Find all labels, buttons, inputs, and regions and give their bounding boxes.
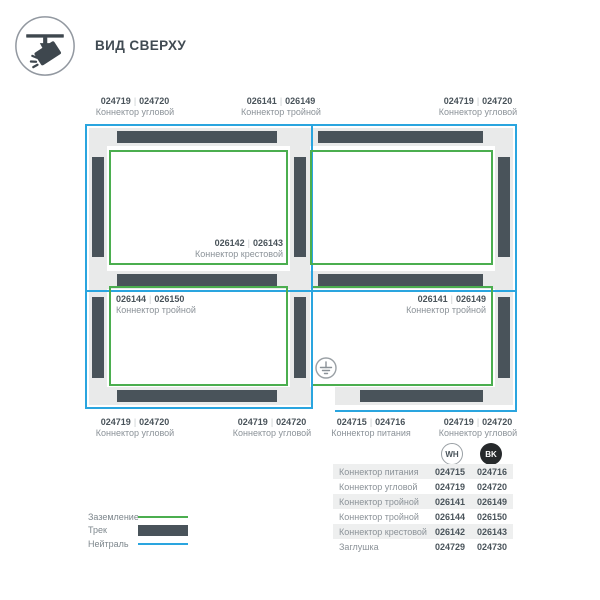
neutral-line xyxy=(335,410,517,412)
part-name: Коннектор крестовой xyxy=(333,527,429,537)
neutral-line xyxy=(85,407,313,409)
part-code-wh: 024715 xyxy=(429,467,471,477)
parts-table: Коннектор питания 024715 024716 Коннекто… xyxy=(333,464,513,554)
legend-item-track: Трек xyxy=(88,524,188,538)
legend: Заземление Трек Нейтраль xyxy=(88,510,188,551)
connector-label-top-right: 024719|024720 Коннектор угловой xyxy=(428,96,528,117)
part-code-bk: 024716 xyxy=(471,467,513,477)
ground-icon xyxy=(315,357,337,379)
part-code-wh: 024729 xyxy=(429,542,471,552)
table-row: Коннектор крестовой 026142 026143 xyxy=(333,524,513,539)
part-code-bk: 026149 xyxy=(471,497,513,507)
track-segment xyxy=(92,157,104,257)
part-code-wh: 026141 xyxy=(429,497,471,507)
color-badge-white: WH xyxy=(441,443,463,465)
track-bar-swatch xyxy=(138,525,188,536)
part-name: Коннектор тройной xyxy=(333,512,429,522)
part-code-wh: 024719 xyxy=(429,482,471,492)
track-segment xyxy=(92,297,104,378)
legend-item-neutral: Нейтраль xyxy=(88,537,188,551)
part-code-wh: 026144 xyxy=(429,512,471,522)
legend-item-ground: Заземление xyxy=(88,510,188,524)
neutral-line xyxy=(85,124,517,126)
neutral-line xyxy=(85,124,87,409)
ground-line-dashed xyxy=(314,384,338,386)
track-segment xyxy=(498,157,510,257)
track-segment xyxy=(117,274,277,286)
part-code-bk: 024730 xyxy=(471,542,513,552)
connector-label-right-middle: 026141|026149 Коннектор тройной xyxy=(336,294,486,315)
color-badge-black: BK xyxy=(480,443,502,465)
part-code-bk: 026150 xyxy=(471,512,513,522)
track-segment xyxy=(294,297,306,378)
part-name: Заглушка xyxy=(333,542,429,552)
track-segment xyxy=(117,390,277,402)
table-row: Коннектор тройной 026141 026149 xyxy=(333,494,513,509)
page-title: ВИД СВЕРХУ xyxy=(95,38,186,53)
connector-label-top-middle: 026141|026149 Коннектор тройной xyxy=(231,96,331,117)
part-code-wh: 026142 xyxy=(429,527,471,537)
part-name: Коннектор угловой xyxy=(333,482,429,492)
ground-line xyxy=(310,150,493,265)
neutral-line xyxy=(515,124,517,412)
table-row: Коннектор питания 024715 024716 xyxy=(333,464,513,479)
track-segment xyxy=(318,274,483,286)
connector-label-bottom-right: 024719|024720 Коннектор угловой xyxy=(428,417,528,438)
track-segment xyxy=(294,157,306,257)
connector-label-cross-center: 026142|026143 Коннектор крестовой xyxy=(133,238,283,259)
part-name: Коннектор тройной xyxy=(333,497,429,507)
table-row: Заглушка 024729 024730 xyxy=(333,539,513,554)
connector-label-top-left: 024719|024720 Коннектор угловой xyxy=(85,96,185,117)
ground-line-swatch xyxy=(138,516,188,518)
neutral-line-swatch xyxy=(138,543,188,545)
table-row: Коннектор тройной 026144 026150 xyxy=(333,509,513,524)
track-segment xyxy=(117,131,277,143)
track-segment xyxy=(318,131,483,143)
connector-label-bottom-middle: 024719|024720 Коннектор угловой xyxy=(222,417,322,438)
part-code-bk: 026143 xyxy=(471,527,513,537)
connector-label-left-middle: 026144|026150 Коннектор тройной xyxy=(116,294,266,315)
part-name: Коннектор питания xyxy=(333,467,429,477)
part-code-bk: 024720 xyxy=(471,482,513,492)
connector-label-power-feed: 024715|024716 Коннектор питания xyxy=(321,417,421,438)
table-row: Коннектор угловой 024719 024720 xyxy=(333,479,513,494)
track-segment xyxy=(360,390,483,402)
track-spotlight-top-view-icon xyxy=(14,15,76,77)
connector-label-bottom-left: 024719|024720 Коннектор угловой xyxy=(85,417,185,438)
track-segment xyxy=(498,297,510,378)
